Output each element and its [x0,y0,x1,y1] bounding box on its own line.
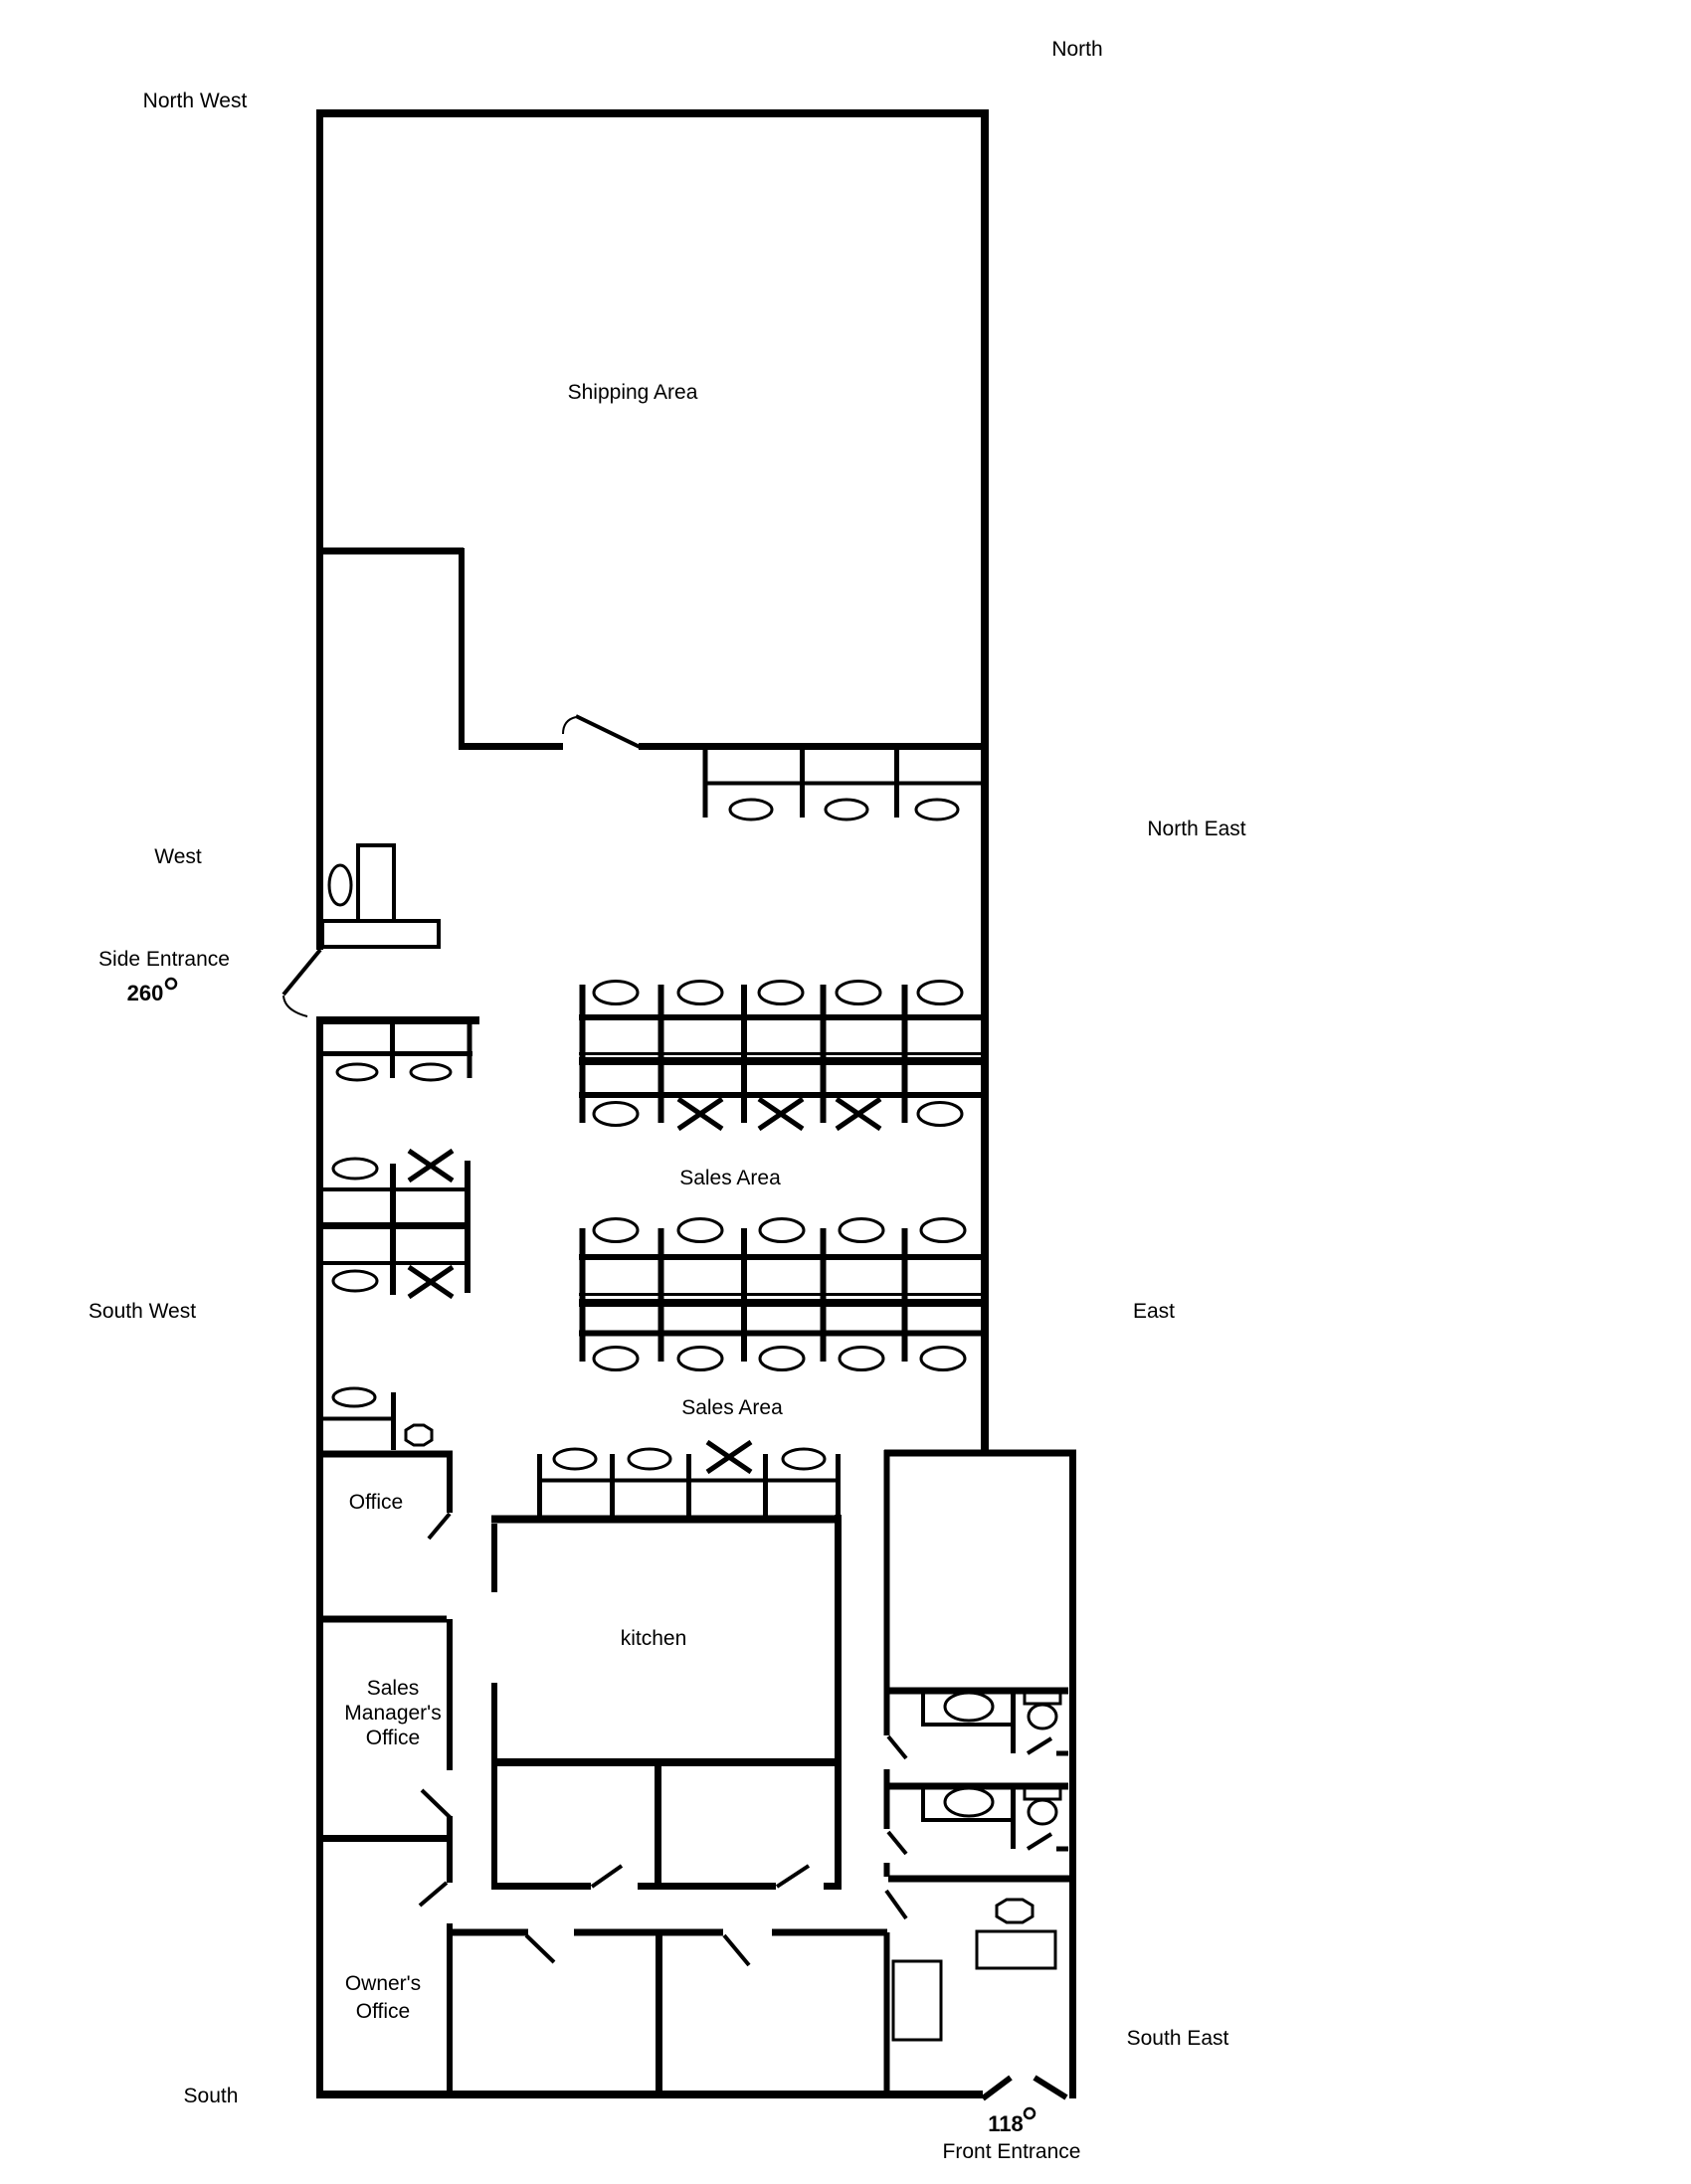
svg-text:North: North [1051,38,1102,61]
svg-text:Sales Area: Sales Area [681,1396,783,1419]
svg-text:South: South [184,2085,239,2107]
svg-text:South East: South East [1127,2027,1229,2050]
svg-text:East: East [1133,1300,1175,1323]
svg-text:Office: Office [356,2000,410,2023]
svg-text:Sales Area: Sales Area [679,1167,781,1189]
svg-text:South West: South West [89,1300,196,1323]
svg-text:Front Entrance: Front Entrance [943,2140,1081,2163]
svg-text:Office: Office [366,1727,420,1749]
svg-text:Manager's: Manager's [344,1702,441,1725]
svg-text:North West: North West [143,90,248,112]
svg-text:kitchen: kitchen [621,1627,687,1650]
svg-text:Side Entrance: Side Entrance [98,948,230,971]
svg-text:Shipping Area: Shipping Area [568,381,698,404]
svg-text:Sales: Sales [367,1677,420,1700]
svg-text:North East: North East [1147,818,1245,840]
svg-text:260: 260 [127,981,164,1005]
svg-text:West: West [154,845,202,868]
svg-text:118: 118 [988,2111,1024,2136]
svg-text:Owner's: Owner's [345,1972,421,1995]
svg-text:Office: Office [349,1491,403,1514]
